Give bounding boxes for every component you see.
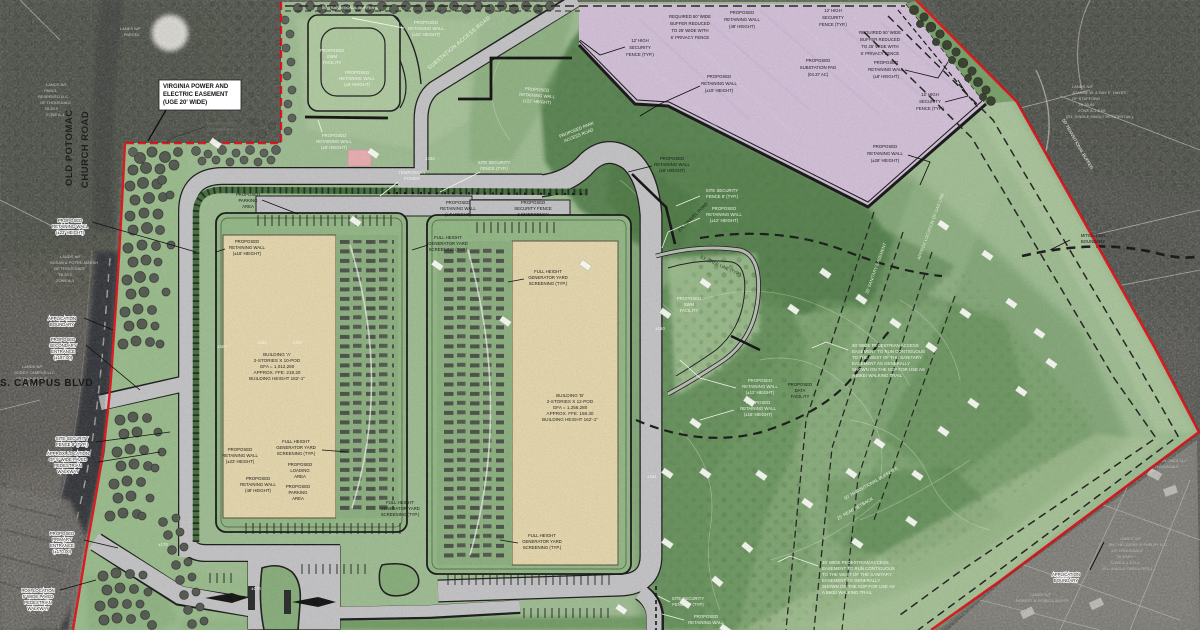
svg-text:RETAINING WALL: RETAINING WALL [701, 81, 737, 86]
svg-text:FENCE (TYP.): FENCE (TYP.) [819, 22, 847, 27]
svg-text:SCREENING (TYP.): SCREENING (TYP.) [523, 545, 562, 550]
svg-text:FULL HEIGHT: FULL HEIGHT [534, 269, 562, 274]
svg-text:BOUNDARY: BOUNDARY [1054, 578, 1078, 583]
svg-text:GENERATOR YARD: GENERATOR YARD [380, 506, 420, 511]
svg-text:AREA: AREA [242, 204, 254, 209]
svg-text:PROPOSED: PROPOSED [874, 60, 898, 65]
svg-text:GENERATOR YARD: GENERATOR YARD [276, 445, 316, 450]
svg-text:PROPOSED: PROPOSED [322, 133, 346, 138]
svg-text:±184: ±184 [257, 340, 267, 345]
svg-text:& EMERGENCY: & EMERGENCY [517, 212, 549, 217]
svg-text:POWER: POWER [404, 176, 420, 181]
svg-text:RETAINING WALL: RETAINING WALL [229, 245, 265, 250]
svg-text:EASEMENT TO RUN CONTIGUOUS: EASEMENT TO RUN CONTIGUOUS [852, 349, 925, 354]
svg-text:APPLICATION: APPLICATION [1052, 572, 1080, 577]
svg-text:SCREENING (TYP.): SCREENING (TYP.) [529, 281, 568, 286]
svg-text:BOUNDARY: BOUNDARY [50, 322, 74, 327]
svg-text:12' HIGH: 12' HIGH [921, 92, 939, 97]
svg-text:FENCE (TYP.): FENCE (TYP.) [916, 106, 944, 111]
svg-text:(48' HEIGHT): (48' HEIGHT) [729, 24, 755, 29]
svg-text:PEDESTRIAN: PEDESTRIAN [54, 463, 81, 468]
svg-text:±187: ±187 [293, 340, 303, 345]
svg-text:RETAINING WALL: RETAINING WALL [740, 406, 776, 411]
svg-text:TO THE WEST OF THE SANITARY: TO THE WEST OF THE SANITARY [852, 355, 922, 360]
svg-text:SECURITY: SECURITY [919, 99, 941, 104]
svg-text:PROPOSED: PROPOSED [748, 378, 772, 383]
svg-text:RETAINING WALL: RETAINING WALL [724, 17, 760, 22]
svg-text:SECURITY FENCE: SECURITY FENCE [514, 206, 552, 211]
svg-text:EASEMENT AS GENERALLY: EASEMENT AS GENERALLY [822, 578, 880, 583]
svg-text:ENTRANCE: ENTRANCE [50, 543, 74, 548]
svg-text:(±22' HEIGHT): (±22' HEIGHT) [412, 32, 441, 37]
svg-text:SECURITY: SECURITY [629, 45, 651, 50]
svg-text:PEDESTRIAN: PEDESTRIAN [24, 600, 51, 605]
svg-text:RETAINING WALL: RETAINING WALL [440, 206, 476, 211]
svg-text:6' PRIVACY FENCE: 6' PRIVACY FENCE [861, 51, 900, 56]
svg-text:SITE SECURITY: SITE SECURITY [706, 188, 739, 193]
svg-text:PROPOSED: PROPOSED [51, 337, 75, 342]
svg-text:SITE SECURITY: SITE SECURITY [56, 436, 89, 441]
svg-text:(±187.00): (±187.00) [54, 355, 73, 360]
svg-text:30' WIDE PEDESTRIAN ACCESS: 30' WIDE PEDESTRIAN ACCESS [822, 560, 889, 565]
svg-text:(UGE 20' WIDE): (UGE 20' WIDE) [163, 100, 207, 106]
svg-text:SITE SECURITY: SITE SECURITY [478, 160, 511, 165]
svg-text:PROPOSED: PROPOSED [746, 400, 770, 405]
svg-text:6' PRIVACY FENCE: 6' PRIVACY FENCE [671, 35, 710, 40]
svg-text:FACILITY: FACILITY [680, 308, 699, 313]
svg-text:ELECTRIC EASEMENT: ELECTRIC EASEMENT [163, 92, 228, 98]
svg-text:VIRGINIA POWER AND: VIRGINIA POWER AND [163, 84, 229, 90]
svg-text:EASEMENT TO RUN CONTIGUOUS: EASEMENT TO RUN CONTIGUOUS [822, 566, 895, 571]
svg-text:(±19' HEIGHT): (±19' HEIGHT) [705, 88, 734, 93]
svg-text:(04.37 AC): (04.37 AC) [808, 72, 829, 77]
svg-text:BUFFER REDUCED: BUFFER REDUCED [860, 37, 900, 42]
svg-text:PROPOSED: PROPOSED [806, 58, 830, 63]
svg-text:PROPOSED: PROPOSED [707, 74, 731, 79]
svg-text:PROPOSED: PROPOSED [414, 20, 438, 25]
svg-text:(±170.00): (±170.00) [53, 549, 72, 554]
svg-text:FULL HEIGHT: FULL HEIGHT [434, 235, 462, 240]
svg-text:SHOWN ON THE GDP FOR USE AS: SHOWN ON THE GDP FOR USE AS [852, 367, 925, 372]
svg-text:APPROX. LOCATION: APPROX. LOCATION [47, 451, 89, 456]
svg-text:AREA: AREA [294, 474, 306, 479]
svg-text:SUBSTATION PAD: SUBSTATION PAD [800, 65, 837, 70]
svg-text:PROPOSED: PROPOSED [730, 10, 754, 15]
svg-text:30' WIDE PEDESTRIAN ACCESS: 30' WIDE PEDESTRIAN ACCESS [852, 343, 919, 348]
svg-text:MITIGATION: MITIGATION [207, 121, 233, 126]
svg-text:FACILITY: FACILITY [323, 60, 342, 65]
svg-text:12' HIGH: 12' HIGH [631, 38, 649, 43]
svg-text:SCREENING (TYP.): SCREENING (TYP.) [277, 451, 316, 456]
svg-text:±192: ±192 [425, 156, 435, 161]
svg-text:SWM: SWM [327, 54, 338, 59]
svg-text:PROPOSED: PROPOSED [345, 70, 369, 75]
svg-text:±160: ±160 [655, 326, 665, 331]
svg-text:FENCE (TYP.): FENCE (TYP.) [480, 166, 508, 171]
svg-text:TO 25' WIDE WITH: TO 25' WIDE WITH [671, 28, 708, 33]
svg-text:OF 5' WIDE PAVED: OF 5' WIDE PAVED [49, 457, 87, 462]
svg-text:FENCE (TYP.): FENCE (TYP.) [626, 52, 654, 57]
svg-text:PROPOSED: PROPOSED [712, 206, 736, 211]
svg-text:PROPOSED: PROPOSED [50, 531, 74, 536]
svg-text:RETAINING WALL: RETAINING WALL [52, 224, 88, 229]
svg-text:FENCE 8' (TYP): FENCE 8' (TYP) [672, 602, 704, 607]
svg-text:PROPOSED: PROPOSED [58, 218, 82, 223]
svg-text:APPLICATION: APPLICATION [48, 316, 76, 321]
svg-text:WALKWAY: WALKWAY [27, 606, 48, 611]
svg-text:GENERATOR YARD: GENERATOR YARD [522, 539, 562, 544]
svg-text:A BIKE/ WALKING TRAIL: A BIKE/ WALKING TRAIL [822, 590, 873, 595]
svg-text:RETAINING WALL: RETAINING WALL [654, 162, 690, 167]
svg-text:PROPOSED: PROPOSED [873, 144, 897, 149]
svg-text:SECONDARY: SECONDARY [49, 343, 76, 348]
svg-text:PROPOSED: PROPOSED [286, 484, 310, 489]
svg-text:±187: ±187 [217, 344, 227, 349]
svg-text:FENCE 8' (TYP.): FENCE 8' (TYP.) [706, 194, 739, 199]
svg-text:SCREENING (TYP.): SCREENING (TYP.) [381, 512, 420, 517]
svg-text:TO 25' WIDE WITH: TO 25' WIDE WITH [861, 44, 898, 49]
svg-text:(±8' HEIGHT): (±8' HEIGHT) [873, 74, 899, 79]
svg-text:PROPOSED: PROPOSED [694, 614, 718, 619]
svg-text:PROPOSED: PROPOSED [235, 239, 259, 244]
svg-text:PRIMARY: PRIMARY [52, 537, 72, 542]
svg-text:LOADING: LOADING [290, 468, 310, 473]
svg-text:RETAINING WALL: RETAINING WALL [240, 482, 276, 487]
svg-text:(±16' HEIGHT): (±16' HEIGHT) [744, 412, 773, 417]
svg-text:SWM: SWM [684, 302, 695, 307]
svg-text:12' HIGH: 12' HIGH [824, 8, 842, 13]
svg-text:SCREENING (TYP.): SCREENING (TYP.) [429, 247, 468, 252]
svg-text:PROPOSED: PROPOSED [788, 382, 812, 387]
svg-text:FULL HEIGHT: FULL HEIGHT [282, 439, 310, 444]
svg-text:PROPOSED: PROPOSED [236, 192, 260, 197]
svg-text:TO THE WEST OF THE SANITARY: TO THE WEST OF THE SANITARY [822, 572, 892, 577]
svg-text:MITIGATION: MITIGATION [1081, 233, 1106, 238]
svg-text:(±22' HEIGHT): (±22' HEIGHT) [56, 230, 85, 235]
svg-text:(±28' HEIGHT): (±28' HEIGHT) [871, 158, 900, 163]
svg-text:(±12' HEIGHT): (±12' HEIGHT) [746, 390, 775, 395]
svg-text:±161: ±161 [647, 474, 657, 479]
svg-text:RETAINING WALL: RETAINING WALL [339, 76, 375, 81]
svg-text:PROPOSED: PROPOSED [246, 476, 270, 481]
svg-text:BUFFER REDUCED: BUFFER REDUCED [670, 21, 710, 26]
svg-text:PROPOSED: PROPOSED [228, 447, 252, 452]
svg-text:RETAINING WALL: RETAINING WALL [408, 26, 444, 31]
svg-text:A BIKE/ WALKING TRAIL: A BIKE/ WALKING TRAIL [852, 373, 903, 378]
svg-text:BOUNDARY: BOUNDARY [207, 127, 233, 132]
svg-text:REQUIRED 50' WIDE: REQUIRED 50' WIDE [859, 30, 901, 35]
svg-text:FENCE 8' (TYP.): FENCE 8' (TYP.) [56, 442, 89, 447]
svg-text:SITE SECURITY: SITE SECURITY [672, 596, 705, 601]
svg-text:RETAINING WALL: RETAINING WALL [688, 620, 724, 625]
svg-text:PARKING: PARKING [288, 490, 308, 495]
svg-text:WALKWAY: WALKWAY [57, 469, 78, 474]
svg-text:RETAINING WALL: RETAINING WALL [868, 67, 904, 72]
svg-text:(±4' HEIGHT): (±4' HEIGHT) [445, 212, 471, 217]
svg-text:ROX. LOCATION: ROX. LOCATION [21, 588, 54, 593]
svg-text:PROPOSED: PROPOSED [320, 48, 344, 53]
svg-text:RETAINING WALL: RETAINING WALL [222, 453, 258, 458]
svg-text:FULL HEIGHT: FULL HEIGHT [528, 533, 556, 538]
svg-text:RETAINING WALL: RETAINING WALL [706, 212, 742, 217]
svg-text:5' WIDE PAVED: 5' WIDE PAVED [23, 594, 54, 599]
svg-text:(48' HEIGHT): (48' HEIGHT) [245, 488, 271, 493]
svg-text:PROPOSED: PROPOSED [521, 200, 545, 205]
svg-text:(±8' HEIGHT): (±8' HEIGHT) [321, 145, 347, 150]
svg-text:AREA: AREA [292, 496, 304, 501]
svg-text:EASEMENT AS GENERALLY: EASEMENT AS GENERALLY [852, 361, 910, 366]
svg-text:SECURITY: SECURITY [822, 15, 844, 20]
svg-text:PROPOSED: PROPOSED [446, 200, 470, 205]
svg-text:GENERATOR YARD: GENERATOR YARD [528, 275, 568, 280]
svg-text:FACILITY: FACILITY [791, 394, 810, 399]
svg-text:PROPOSED: PROPOSED [660, 156, 684, 161]
svg-text:BOUNDARY: BOUNDARY [1081, 239, 1105, 244]
svg-text:(±18' HEIGHT): (±18' HEIGHT) [233, 251, 262, 256]
svg-text:DATA: DATA [795, 388, 806, 393]
svg-text:FULL HEIGHT: FULL HEIGHT [386, 500, 414, 505]
svg-text:(±8' HEIGHT): (±8' HEIGHT) [344, 82, 370, 87]
svg-text:50' TRANSITIONAL BUFFER C: 50' TRANSITIONAL BUFFER C [322, 5, 378, 10]
svg-text:(±6' HEIGHT): (±6' HEIGHT) [659, 168, 685, 173]
svg-text:±170: ±170 [251, 586, 261, 591]
svg-text:RETAINING WALL: RETAINING WALL [867, 151, 903, 156]
svg-text:(±23' HEIGHT): (±23' HEIGHT) [226, 459, 255, 464]
svg-text:ENTRANCE: ENTRANCE [51, 349, 75, 354]
svg-text:RETAINING WALL: RETAINING WALL [316, 139, 352, 144]
svg-text:GENERATOR YARD: GENERATOR YARD [428, 241, 468, 246]
svg-text:PARKING: PARKING [238, 198, 258, 203]
svg-text:RETAINING WALL: RETAINING WALL [742, 384, 778, 389]
svg-text:±170: ±170 [158, 542, 168, 547]
svg-text:SHOWN ON THE GDP FOR USE AS: SHOWN ON THE GDP FOR USE AS [822, 584, 895, 589]
svg-text:PROPOSED: PROPOSED [288, 462, 312, 467]
svg-text:TEMPORARY: TEMPORARY [398, 170, 425, 175]
svg-text:PROPOSED: PROPOSED [677, 296, 701, 301]
svg-text:REQUIRED 50' WIDE: REQUIRED 50' WIDE [669, 14, 711, 19]
svg-text:(±12' HEIGHT): (±12' HEIGHT) [710, 218, 739, 223]
